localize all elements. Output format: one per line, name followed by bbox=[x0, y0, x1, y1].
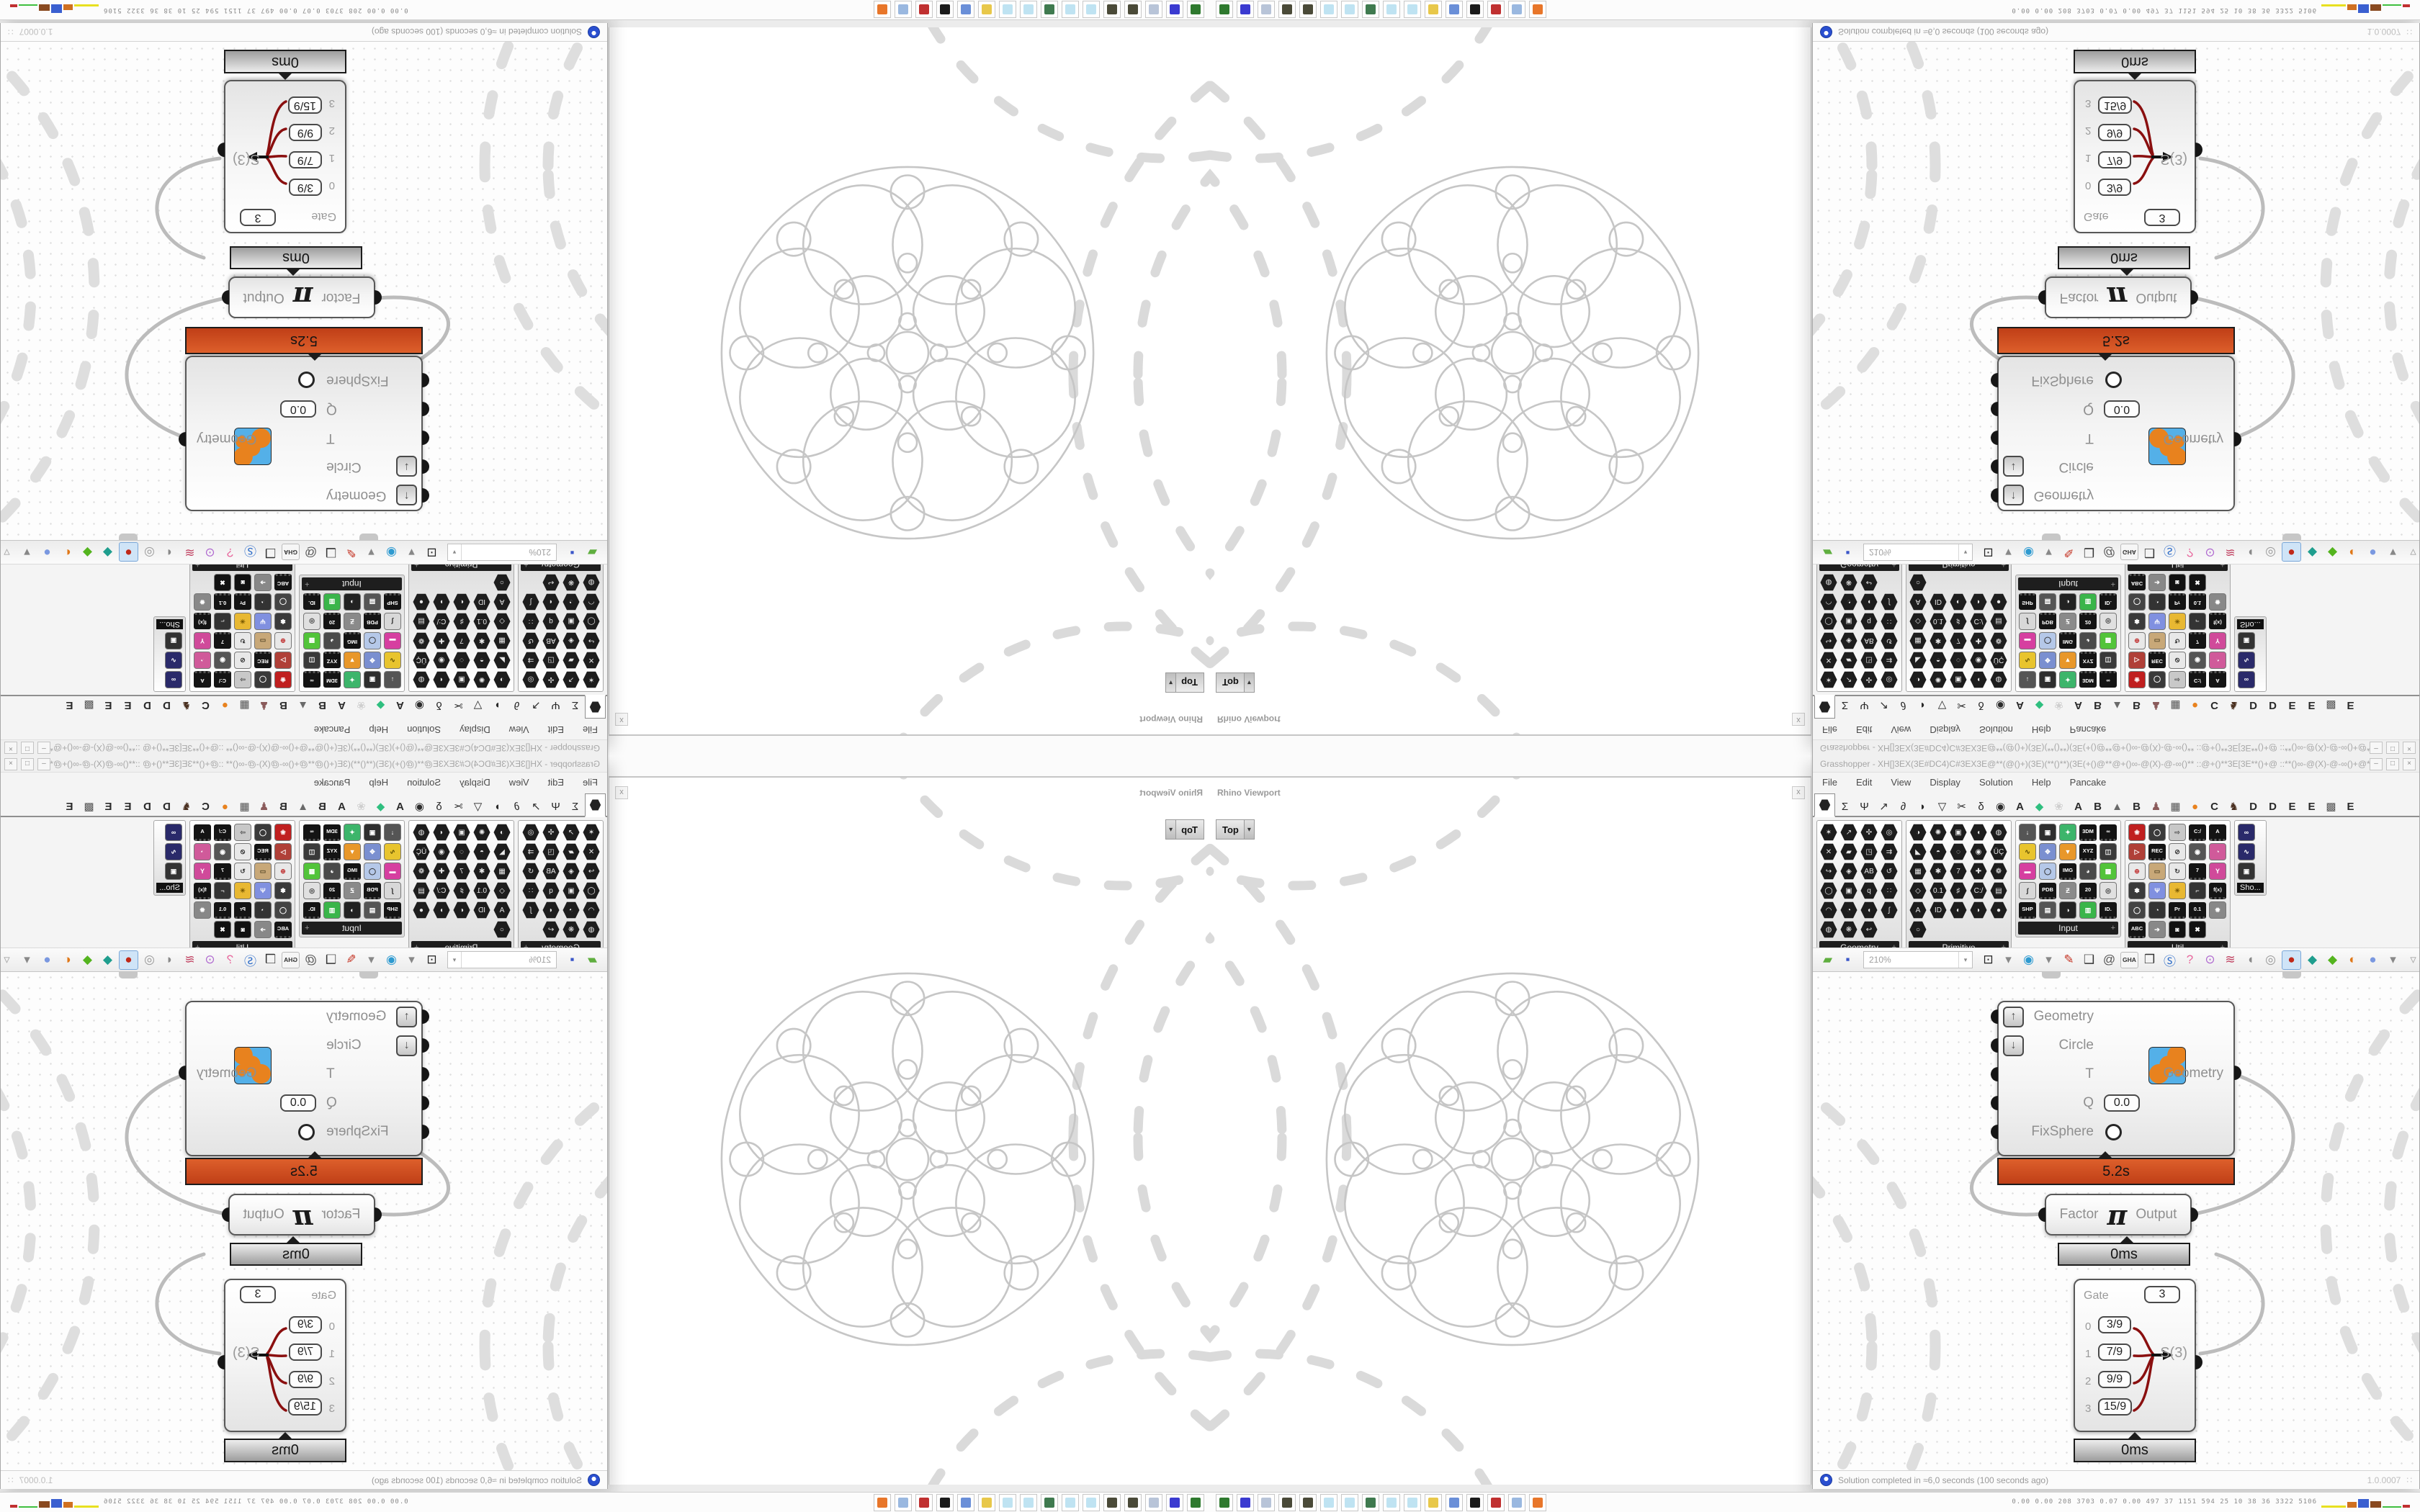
component-tab-18[interactable]: ▦ bbox=[2166, 696, 2185, 715]
palette-icon[interactable]: ◯ bbox=[2148, 670, 2166, 689]
palette-icon[interactable]: ◍ bbox=[412, 823, 431, 842]
preview-eye-icon[interactable]: ◉ bbox=[2020, 544, 2038, 562]
output-connector[interactable] bbox=[2191, 1207, 2198, 1222]
preview-shaded-icon[interactable]: ● bbox=[119, 543, 138, 562]
palette-icon[interactable]: ▰ bbox=[1839, 842, 1858, 861]
gh-canvas[interactable]: ↑ Geometry ↓ Circle T Q 0.0 bbox=[1813, 972, 2419, 1470]
menu-item-solution[interactable]: Solution bbox=[398, 725, 450, 736]
save-file-icon[interactable]: ▪ bbox=[1839, 544, 1857, 562]
palette-icon[interactable]: ↺ bbox=[1880, 631, 1899, 650]
component-tab-7[interactable]: ✂ bbox=[1952, 797, 1971, 816]
input-connector[interactable] bbox=[422, 373, 429, 387]
palette-icon[interactable]: ● bbox=[1989, 593, 2008, 611]
component-tab-16[interactable]: B bbox=[274, 797, 293, 816]
palette-icon[interactable]: ✣ bbox=[1860, 670, 1878, 689]
close-button[interactable]: × bbox=[2403, 742, 2416, 755]
cluster-box-icon[interactable]: ? bbox=[2181, 544, 2199, 562]
palette-icon[interactable]: ◔ bbox=[1839, 593, 1858, 611]
palette-icon[interactable]: 0.1 bbox=[472, 612, 491, 631]
octagon-icon[interactable]: ● bbox=[2364, 544, 2382, 562]
palette-icon[interactable]: ⌐ bbox=[2188, 612, 2207, 631]
notepad-icon[interactable] bbox=[1083, 1, 1100, 18]
palette-icon[interactable]: ✖ bbox=[213, 920, 232, 939]
palette-icon[interactable]: q bbox=[542, 612, 560, 631]
component-tab-26[interactable]: ▩ bbox=[79, 696, 99, 715]
notepad-icon[interactable] bbox=[1320, 1494, 1337, 1511]
palette-icon[interactable]: ▼ bbox=[343, 842, 362, 861]
palette-icon[interactable]: ◉ bbox=[1969, 842, 1988, 861]
caret-icon[interactable]: ▾ bbox=[403, 951, 421, 969]
palette-icon[interactable]: Y bbox=[2208, 862, 2227, 881]
computer-icon[interactable] bbox=[1446, 1494, 1463, 1511]
output-connector[interactable] bbox=[179, 1066, 186, 1080]
component-tab-7[interactable]: ✂ bbox=[449, 696, 468, 715]
floppy-64-icon[interactable] bbox=[1166, 1494, 1183, 1511]
palette-icon[interactable]: A bbox=[193, 823, 212, 842]
palette-icon[interactable]: ✹ bbox=[2208, 901, 2227, 919]
palette-icon[interactable]: ◯ bbox=[582, 881, 601, 900]
output-connector[interactable] bbox=[218, 1355, 225, 1369]
palette-icon[interactable]: REC bbox=[254, 842, 272, 861]
collapse-caret-icon[interactable]: ▿ bbox=[0, 951, 16, 969]
canvas-edge-handle[interactable] bbox=[2042, 534, 2061, 540]
component-tab-14[interactable]: B bbox=[313, 797, 332, 816]
component-tab-20[interactable]: C bbox=[196, 797, 215, 816]
resize-grip-icon[interactable]: ∷ bbox=[8, 27, 14, 37]
palette-icon[interactable]: ✱ bbox=[472, 631, 491, 650]
caret-icon[interactable]: ▾ bbox=[18, 951, 36, 969]
component-tab-17[interactable]: ♟ bbox=[2146, 797, 2166, 816]
computer-icon[interactable] bbox=[957, 1494, 974, 1511]
component-tab-5[interactable]: ◗ bbox=[1913, 696, 1932, 715]
palette-icon[interactable]: ▣ bbox=[363, 670, 382, 689]
palette-icon[interactable]: ◑ bbox=[493, 823, 511, 842]
component-tab-2[interactable]: Ψ bbox=[1855, 696, 1874, 715]
palette-icon[interactable]: ↪ bbox=[1819, 862, 1838, 881]
menu-item-help[interactable]: Help bbox=[2022, 777, 2061, 788]
palette-icon[interactable]: 20 bbox=[323, 881, 341, 900]
palette-icon[interactable]: ∿ bbox=[2018, 651, 2037, 670]
palette-icon[interactable]: 7 bbox=[213, 631, 232, 650]
preview-shaded-icon[interactable]: ● bbox=[119, 950, 138, 970]
monitor-icon[interactable] bbox=[1362, 1494, 1379, 1511]
palette-icon[interactable]: ❀ bbox=[2128, 823, 2146, 842]
open-file-icon[interactable]: ▰ bbox=[583, 951, 601, 969]
input-connector[interactable] bbox=[1991, 402, 1998, 416]
palette-icon[interactable]: ◯ bbox=[2148, 823, 2166, 842]
menu-item-solution[interactable]: Solution bbox=[1970, 777, 2022, 788]
palette-icon[interactable]: ◈ bbox=[1839, 631, 1858, 650]
palette-icon[interactable]: ◑ bbox=[343, 593, 362, 611]
viewport-view-tab[interactable]: Top ▾ bbox=[1216, 672, 1255, 693]
preview-wireframe-icon[interactable]: ◎ bbox=[2262, 951, 2280, 969]
palette-icon[interactable]: ◙ bbox=[2168, 573, 2187, 592]
palette-icon[interactable]: ▤ bbox=[2038, 901, 2057, 919]
component-tab-11[interactable]: ◆ bbox=[2030, 696, 2049, 715]
palette-icon[interactable]: ⇨ bbox=[233, 670, 252, 689]
component-tab-22[interactable]: D bbox=[157, 797, 176, 816]
menu-item-solution[interactable]: Solution bbox=[398, 777, 450, 788]
input-connector[interactable] bbox=[375, 1207, 382, 1222]
palette-icon[interactable]: ◐ bbox=[452, 593, 471, 611]
octagon-icon[interactable]: ● bbox=[2364, 951, 2382, 969]
menu-item-pancake[interactable]: Pancake bbox=[2061, 777, 2116, 788]
app-red-icon[interactable] bbox=[1487, 1, 1505, 18]
component-tab-19[interactable]: ● bbox=[2185, 797, 2205, 816]
component-tab-15[interactable]: ▲ bbox=[2107, 797, 2127, 816]
expand-plus-icon[interactable]: + bbox=[2111, 580, 2115, 588]
preview-shaded-icon[interactable]: ● bbox=[2282, 950, 2301, 970]
palette-icon[interactable]: ◍ bbox=[412, 670, 431, 689]
orb-icon[interactable] bbox=[1278, 1, 1296, 18]
component-tab-0[interactable] bbox=[1814, 695, 1835, 719]
palette-icon[interactable]: f(x) bbox=[2208, 881, 2227, 900]
component-tab-1[interactable]: Σ bbox=[565, 696, 585, 715]
palette-icon[interactable]: ↓ bbox=[383, 670, 402, 689]
preview-off-icon[interactable]: ◖ bbox=[2241, 544, 2259, 562]
palette-icon[interactable]: ◈ bbox=[1839, 862, 1858, 881]
scroll-icon[interactable] bbox=[1258, 1, 1275, 18]
palette-icon[interactable]: ABC bbox=[274, 573, 292, 592]
palette-icon[interactable]: ◖ bbox=[1860, 901, 1878, 919]
component-tab-14[interactable]: B bbox=[2088, 797, 2107, 816]
calculator-icon[interactable] bbox=[895, 1494, 912, 1511]
palette-icon[interactable]: ➔ bbox=[254, 920, 272, 939]
galapagos-icon[interactable]: ⊙ bbox=[201, 951, 219, 969]
sketch-pen-icon[interactable]: ✎ bbox=[342, 544, 360, 562]
gate-value-box[interactable]: 3 bbox=[2144, 1286, 2180, 1303]
component-tab-13[interactable]: A bbox=[2069, 696, 2088, 715]
palette-icon[interactable]: ◖ bbox=[542, 901, 560, 919]
orb-icon-2[interactable] bbox=[1103, 1494, 1121, 1511]
palette-icon[interactable]: 0.1 bbox=[2188, 901, 2207, 919]
gh-canvas[interactable]: ↑ Geometry ↓ Circle T Q 0.0 bbox=[1, 42, 607, 540]
zoom-level-select[interactable]: 210%▾ bbox=[447, 544, 557, 561]
palette-icon[interactable]: ◇ bbox=[493, 881, 511, 900]
component-tab-6[interactable]: ▽ bbox=[468, 696, 488, 715]
palette-icon[interactable]: ID bbox=[472, 901, 491, 919]
component-tab-23[interactable]: D bbox=[2263, 696, 2282, 715]
palette-icon[interactable]: Y bbox=[2208, 631, 2227, 650]
palette-icon[interactable]: ✦ bbox=[2058, 670, 2077, 689]
point-display-icon[interactable]: ◆ bbox=[2303, 951, 2321, 969]
palette-icon[interactable]: ✺ bbox=[1929, 823, 1948, 842]
palette-icon[interactable]: PDB bbox=[2038, 612, 2057, 631]
palette-icon[interactable]: C:/ bbox=[2188, 670, 2207, 689]
input-connector[interactable] bbox=[422, 1125, 429, 1139]
palette-icon[interactable]: PDB bbox=[2038, 881, 2057, 900]
preview-eye-icon[interactable]: ◉ bbox=[382, 951, 400, 969]
component-tab-21[interactable]: ♞ bbox=[2224, 797, 2244, 816]
palette-icon[interactable]: ✦ bbox=[2058, 823, 2077, 842]
component-tab-13[interactable]: A bbox=[332, 797, 351, 816]
palette-group-label[interactable]: Input+ bbox=[302, 922, 402, 935]
close-button[interactable]: × bbox=[4, 742, 17, 755]
viewport-view-tab[interactable]: Top ▾ bbox=[1165, 672, 1204, 693]
expand-plus-icon[interactable]: + bbox=[2111, 924, 2115, 932]
input-connector[interactable] bbox=[1991, 488, 1998, 503]
palette-icon[interactable]: ID. bbox=[2099, 593, 2117, 611]
monitor-icon[interactable] bbox=[1362, 1, 1379, 18]
sketch-pen-icon[interactable]: ✎ bbox=[2060, 544, 2078, 562]
palette-icon[interactable]: C:/ bbox=[432, 881, 451, 900]
palette-icon[interactable]: ▣ bbox=[2038, 670, 2057, 689]
galapagos-icon[interactable]: ⊙ bbox=[201, 544, 219, 562]
palette-icon[interactable]: ◔ bbox=[2148, 901, 2166, 919]
palette-icon[interactable]: XYZ bbox=[323, 651, 341, 670]
galapagos-icon[interactable]: ⊙ bbox=[2201, 951, 2219, 969]
palette-icon[interactable]: ◗ bbox=[1969, 901, 1988, 919]
palette-icon[interactable]: Pr bbox=[2168, 901, 2187, 919]
row-value-box[interactable]: 9/9 bbox=[2098, 124, 2131, 141]
boolean-toggle-icon[interactable] bbox=[298, 372, 315, 389]
internalise-icon[interactable]: @ bbox=[2100, 544, 2118, 562]
component-tab-27[interactable]: E bbox=[2341, 797, 2360, 816]
preview-off-icon[interactable]: ◖ bbox=[161, 544, 179, 562]
palette-icon[interactable]: ◑ bbox=[343, 901, 362, 919]
save-file-icon[interactable]: ▪ bbox=[1839, 951, 1857, 969]
palette-icon[interactable]: ✚ bbox=[1969, 862, 1988, 881]
palette-icon[interactable]: ⊘ bbox=[2168, 842, 2187, 861]
sphere-display-icon[interactable]: ◐ bbox=[2344, 951, 2362, 969]
palette-icon[interactable]: ∷ bbox=[521, 612, 540, 631]
palette-icon[interactable]: ◖ bbox=[542, 593, 560, 611]
component-tab-16[interactable]: B bbox=[2127, 797, 2146, 816]
component-tab-14[interactable]: B bbox=[2088, 696, 2107, 715]
palette-icon[interactable]: A bbox=[1909, 593, 1927, 611]
component-tab-27[interactable]: E bbox=[2341, 696, 2360, 715]
chevron-down-icon[interactable]: ▾ bbox=[1244, 820, 1254, 839]
palette-icon[interactable]: ÜÇ bbox=[1989, 842, 2008, 861]
palette-icon[interactable]: ID bbox=[1929, 901, 1948, 919]
pi-component[interactable]: Factor π Output bbox=[228, 1194, 375, 1236]
palette-icon[interactable]: ∿ bbox=[2237, 842, 2256, 861]
row-value-box[interactable]: 7/9 bbox=[2098, 1344, 2131, 1361]
row-value-box[interactable]: 9/9 bbox=[289, 1371, 322, 1388]
folder-icon[interactable] bbox=[978, 1, 995, 18]
component-tab-17[interactable]: ♟ bbox=[254, 797, 274, 816]
palette-icon[interactable]: ▣ bbox=[452, 823, 471, 842]
remote-window-icon[interactable]: ❒ bbox=[2141, 951, 2159, 969]
component-tab-27[interactable]: E bbox=[60, 797, 79, 816]
palette-icon[interactable]: 0.1 bbox=[472, 881, 491, 900]
palette-icon[interactable]: ◉ bbox=[2188, 651, 2207, 670]
app-bw-icon[interactable] bbox=[1466, 1494, 1484, 1511]
palette-icon[interactable]: ◣ bbox=[1909, 651, 1927, 670]
palette-icon[interactable]: 20 bbox=[323, 612, 341, 631]
component-tab-9[interactable]: ◉ bbox=[1991, 797, 2010, 816]
palette-icon[interactable]: ID. bbox=[302, 901, 321, 919]
caret-icon[interactable]: ▾ bbox=[1999, 951, 2017, 969]
palette-group-label[interactable]: Input+ bbox=[302, 577, 402, 590]
output-connector[interactable] bbox=[2234, 1066, 2241, 1080]
gate-value-box[interactable]: 3 bbox=[2144, 209, 2180, 226]
palette-icon[interactable]: ✶ bbox=[582, 670, 601, 689]
palette-icon[interactable]: 7 bbox=[1949, 862, 1968, 881]
palette-icon[interactable]: ▭ bbox=[2148, 862, 2166, 881]
palette-icon[interactable]: ➔ bbox=[2148, 573, 2166, 592]
component-tab-23[interactable]: D bbox=[138, 797, 157, 816]
palette-icon[interactable]: ▤ bbox=[412, 612, 431, 631]
component-tab-5[interactable]: ◗ bbox=[488, 797, 507, 816]
notepad-icon-4[interactable] bbox=[1404, 1494, 1421, 1511]
point-display-icon[interactable]: ◆ bbox=[99, 951, 117, 969]
palette-icon[interactable]: ∞ bbox=[2237, 670, 2256, 689]
palette-icon[interactable]: ▬ bbox=[2018, 631, 2037, 650]
component-tab-1[interactable]: Σ bbox=[565, 797, 585, 816]
wires-icon[interactable]: ≋ bbox=[2221, 544, 2239, 562]
component-tab-18[interactable]: ▦ bbox=[2166, 797, 2185, 816]
drive-icon[interactable] bbox=[1187, 1494, 1204, 1511]
component-tab-13[interactable]: A bbox=[2069, 797, 2088, 816]
find-icon[interactable]: Ⓢ bbox=[2161, 951, 2179, 969]
point-display-icon[interactable]: ◆ bbox=[2303, 544, 2321, 562]
pi-component[interactable]: Factor π Output bbox=[2045, 276, 2192, 318]
gate-value-box[interactable]: 3 bbox=[240, 209, 276, 226]
output-connector[interactable] bbox=[222, 290, 229, 305]
palette-icon[interactable]: ◉ bbox=[1969, 651, 1988, 670]
preview-wireframe-icon[interactable]: ◎ bbox=[140, 951, 158, 969]
close-button[interactable]: × bbox=[2403, 758, 2416, 770]
palette-icon[interactable]: Ƶ bbox=[2058, 612, 2077, 631]
component-tab-6[interactable]: ▽ bbox=[1932, 797, 1952, 816]
palette-icon[interactable]: ∫ bbox=[383, 612, 402, 631]
component-tab-10[interactable]: A bbox=[2010, 797, 2030, 816]
menu-item-edit[interactable]: Edit bbox=[1847, 777, 1881, 788]
palette-icon[interactable]: ◳ bbox=[542, 651, 560, 670]
notepad-icon-3[interactable] bbox=[1383, 1, 1400, 18]
output-connector[interactable] bbox=[218, 143, 225, 157]
input-connector[interactable] bbox=[2038, 290, 2045, 305]
palette-icon[interactable]: ÜÇ bbox=[412, 842, 431, 861]
app-bw-icon[interactable] bbox=[936, 1, 954, 18]
palette-icon[interactable]: Ψ bbox=[254, 881, 272, 900]
palette-icon[interactable]: ◣ bbox=[1909, 842, 1927, 861]
palette-icon[interactable]: ✱ bbox=[1929, 631, 1948, 650]
palette-icon[interactable]: ∫ bbox=[2018, 881, 2037, 900]
palette-icon[interactable]: ▦ bbox=[493, 862, 511, 881]
palette-icon[interactable]: ◠ bbox=[582, 901, 601, 919]
boolean-toggle-icon[interactable] bbox=[2105, 1124, 2122, 1140]
palette-icon[interactable]: ✺ bbox=[472, 823, 491, 842]
palette-icon[interactable]: ◌ bbox=[1949, 842, 1968, 861]
output-connector[interactable] bbox=[2191, 290, 2198, 305]
menu-item-pancake[interactable]: Pancake bbox=[2061, 725, 2116, 736]
notepad-icon-4[interactable] bbox=[999, 1, 1016, 18]
preview-off-icon[interactable]: ◖ bbox=[161, 951, 179, 969]
palette-icon[interactable]: ⊕ bbox=[2128, 631, 2146, 650]
palette-icon[interactable]: ✖ bbox=[2188, 920, 2207, 939]
component-tab-21[interactable]: ♞ bbox=[2224, 696, 2244, 715]
folder-icon[interactable] bbox=[1425, 1494, 1442, 1511]
palette-icon[interactable]: ◍ bbox=[1989, 823, 2008, 842]
palette-icon[interactable]: ABC bbox=[2128, 920, 2146, 939]
palette-icon[interactable]: ◯ bbox=[582, 612, 601, 631]
output-connector[interactable] bbox=[179, 432, 186, 446]
component-tab-2[interactable]: Ψ bbox=[546, 797, 565, 816]
notepad-icon[interactable] bbox=[1083, 1494, 1100, 1511]
palette-icon[interactable]: ✥ bbox=[2038, 842, 2057, 861]
palette-icon[interactable]: ◇ bbox=[1909, 612, 1927, 631]
palette-icon[interactable]: ➔ bbox=[254, 573, 272, 592]
palette-icon[interactable]: ◔ bbox=[254, 901, 272, 919]
palette-icon[interactable]: ◯ bbox=[2038, 862, 2057, 881]
row-value-box[interactable]: 15/9 bbox=[288, 96, 322, 114]
chevron-down-icon[interactable]: ▾ bbox=[1166, 820, 1176, 839]
caret-icon[interactable]: ▾ bbox=[18, 544, 36, 562]
component-tab-19[interactable]: ● bbox=[215, 696, 235, 715]
palette-icon[interactable]: ◗ bbox=[432, 593, 451, 611]
palette-icon[interactable]: ◌ bbox=[1949, 651, 1968, 670]
palette-icon[interactable]: ❀ bbox=[274, 670, 292, 689]
palette-icon[interactable]: ◔ bbox=[562, 593, 581, 611]
palette-icon[interactable]: ➔ bbox=[2148, 920, 2166, 939]
palette-icon[interactable]: ◔ bbox=[193, 651, 212, 670]
collapse-caret-icon[interactable]: ▿ bbox=[2404, 951, 2420, 969]
palette-icon[interactable]: C:/ bbox=[213, 670, 232, 689]
row-value-box[interactable]: 9/9 bbox=[2098, 1371, 2131, 1388]
component-tab-12[interactable]: ❀ bbox=[351, 696, 371, 715]
monitor-icon[interactable] bbox=[1041, 1, 1058, 18]
palette-icon[interactable]: ◓ bbox=[472, 842, 491, 861]
palette-icon[interactable]: ▤ bbox=[363, 901, 382, 919]
palette-icon[interactable]: ▣ bbox=[363, 823, 382, 842]
palette-icon[interactable]: ▷ bbox=[274, 842, 292, 861]
palette-icon[interactable]: ✺ bbox=[1929, 670, 1948, 689]
floppy-64-icon[interactable] bbox=[1237, 1, 1254, 18]
palette-icon[interactable]: ∷ bbox=[521, 881, 540, 900]
input-connector[interactable] bbox=[1991, 431, 1998, 445]
palette-icon[interactable]: ✱ bbox=[1929, 862, 1948, 881]
caret-icon[interactable]: ▾ bbox=[2384, 951, 2402, 969]
palette-icon[interactable]: C:/ bbox=[432, 612, 451, 631]
palette-icon[interactable]: 20 bbox=[2079, 881, 2097, 900]
palette-icon[interactable]: ⇉ bbox=[521, 842, 540, 861]
output-connector[interactable] bbox=[2195, 1355, 2202, 1369]
palette-icon[interactable]: ◣ bbox=[493, 651, 511, 670]
internalise-icon[interactable]: @ bbox=[2100, 951, 2118, 969]
palette-icon[interactable]: ◳ bbox=[1860, 651, 1878, 670]
component-tab-9[interactable]: ◉ bbox=[410, 797, 429, 816]
palette-icon[interactable]: ☀ bbox=[233, 881, 252, 900]
firefox-icon[interactable] bbox=[1529, 1, 1546, 18]
component-tab-0[interactable] bbox=[585, 695, 606, 719]
palette-icon[interactable]: ◑ bbox=[493, 670, 511, 689]
component-tab-1[interactable]: Σ bbox=[1835, 696, 1855, 715]
palette-icon[interactable]: ↗ bbox=[1839, 823, 1858, 842]
chevron-down-icon[interactable]: ▾ bbox=[1166, 673, 1176, 692]
palette-icon[interactable]: ↺ bbox=[1880, 862, 1899, 881]
row-value-box[interactable]: 15/9 bbox=[288, 1398, 322, 1416]
palette-icon[interactable]: ◉ bbox=[432, 842, 451, 861]
input-connector[interactable] bbox=[2038, 1207, 2045, 1222]
palette-icon[interactable]: ∞ bbox=[164, 823, 183, 842]
zoom-extents-icon[interactable]: ⊡ bbox=[1979, 951, 1997, 969]
palette-icon[interactable]: Ψ bbox=[2148, 881, 2166, 900]
component-tab-23[interactable]: D bbox=[2263, 797, 2282, 816]
palette-icon[interactable]: ✽ bbox=[2128, 612, 2146, 631]
palette-icon[interactable]: ↺ bbox=[521, 631, 540, 650]
palette-icon[interactable]: ∞ bbox=[302, 823, 321, 842]
palette-icon[interactable]: ▰ bbox=[1839, 651, 1858, 670]
palette-icon[interactable]: PDB bbox=[363, 881, 382, 900]
palette-icon[interactable]: Ƶ bbox=[2058, 881, 2077, 900]
gha-assembly-icon[interactable]: GHA bbox=[282, 952, 300, 968]
row-value-box[interactable]: 7/9 bbox=[289, 1344, 322, 1361]
component-tab-0[interactable] bbox=[585, 793, 606, 817]
cluster-box-icon[interactable]: ? bbox=[221, 951, 239, 969]
zoom-level-select[interactable]: 210%▾ bbox=[1863, 951, 1973, 968]
